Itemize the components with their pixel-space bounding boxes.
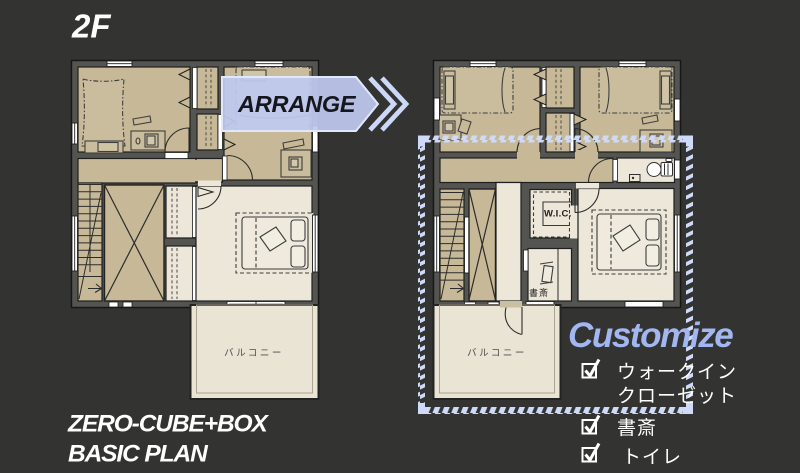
svg-text:書斎: 書斎	[617, 417, 657, 439]
svg-text:書斎: 書斎	[529, 287, 549, 298]
svg-text:2F: 2F	[71, 8, 111, 45]
svg-text:バルコニー: バルコニー	[467, 348, 527, 359]
svg-text:ARRANGE: ARRANGE	[237, 91, 357, 117]
svg-text:バルコニー: バルコニー	[224, 348, 284, 359]
svg-text:W.I.C.: W.I.C.	[544, 209, 572, 220]
svg-text:Customize: Customize	[568, 316, 733, 355]
svg-text:クローゼット: クローゼット	[617, 385, 737, 407]
svg-text:ZERO-CUBE+BOX: ZERO-CUBE+BOX	[67, 411, 269, 438]
svg-text:トイレ: トイレ	[622, 447, 682, 468]
svg-text:BASIC PLAN: BASIC PLAN	[68, 441, 209, 468]
svg-text:ウォークイン: ウォークイン	[617, 361, 737, 383]
